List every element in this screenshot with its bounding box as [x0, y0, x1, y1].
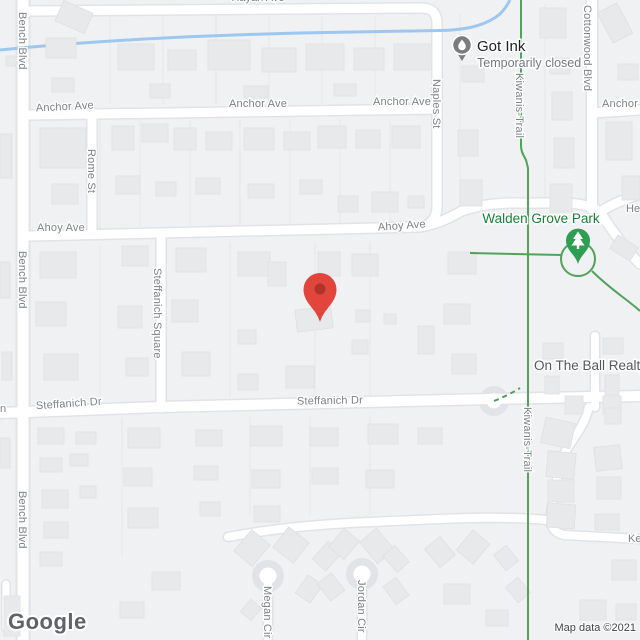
- building-footprint: [238, 252, 270, 276]
- building-footprint: [40, 458, 62, 472]
- building-footprint: [548, 480, 574, 502]
- building-footprint: [172, 300, 198, 322]
- street-label-anchor-ave-right-clipped: Anchor Ave: [602, 98, 640, 110]
- building-footprint: [603, 338, 623, 354]
- street-label-kiwanis-trail-2: Kiwanis-Trail: [521, 407, 533, 472]
- building-footprint: [594, 445, 622, 472]
- poi-on-the-ball-realty-name[interactable]: On The Ball Realty: [534, 358, 640, 373]
- street-label-steffanich-square: Steffanich Square: [151, 268, 163, 359]
- building-footprint: [42, 490, 68, 508]
- building-footprint: [605, 375, 619, 395]
- street-label-anchor-ave-3: Anchor Ave: [373, 96, 431, 108]
- building-footprint: [408, 196, 424, 208]
- building-footprint: [116, 176, 140, 194]
- building-footprint: [44, 354, 78, 380]
- building-footprint: [128, 508, 158, 528]
- building-footprint: [174, 128, 196, 150]
- building-footprint: [366, 470, 394, 488]
- building-footprint: [262, 48, 296, 72]
- street-label-megan-cir: Megan Cir: [261, 586, 273, 639]
- building-footprint: [70, 454, 88, 466]
- map-viewport: Bench Blvd Bench Blvd Bench Blvd Rome St…: [0, 0, 640, 640]
- building-footprint: [606, 122, 632, 160]
- building-footprint: [318, 126, 346, 148]
- street-label-jordan-cir: Jordan Cir: [355, 580, 367, 633]
- building-footprint: [286, 366, 314, 388]
- building-footprint: [196, 430, 222, 446]
- building-footprint: [597, 477, 621, 499]
- building-footprint: [486, 610, 508, 626]
- building-footprint: [0, 134, 12, 178]
- building-footprint: [334, 84, 356, 96]
- building-footprint: [238, 374, 258, 390]
- building-footprint: [284, 132, 310, 150]
- building-footprint: [0, 438, 10, 468]
- building-footprint: [254, 506, 280, 522]
- building-footprint: [248, 184, 274, 198]
- street-label-fragment-ke: Ke: [628, 533, 640, 545]
- street-label-fragment-top-clipped: Hayan Ave: [231, 0, 284, 4]
- building-footprint: [36, 302, 66, 326]
- building-footprint: [418, 326, 434, 354]
- building-footprint: [196, 178, 220, 194]
- building-footprint: [118, 44, 154, 70]
- building-footprint: [356, 130, 380, 148]
- street-label-cottonwood-blvd: Cottonwood Blvd: [581, 5, 593, 91]
- building-footprint: [200, 502, 220, 516]
- building-footprint: [546, 503, 576, 529]
- poi-got-ink-status: Temporarily closed: [477, 56, 581, 70]
- building-footprint: [605, 408, 621, 424]
- building-footprint: [152, 572, 180, 590]
- building-footprint: [448, 252, 476, 274]
- building-footprint: [46, 38, 76, 58]
- building-footprint: [44, 522, 68, 538]
- building-footprint: [244, 128, 274, 150]
- building-footprint: [546, 451, 577, 480]
- building-footprint: [250, 426, 282, 446]
- map-data-attribution: Map data ©2021: [555, 622, 637, 634]
- building-footprint: [52, 184, 78, 204]
- street-label-bench-blvd-2: Bench Blvd: [16, 251, 28, 309]
- building-footprint: [208, 40, 250, 70]
- building-footprint: [150, 84, 170, 98]
- street-label-ahoy-ave-1: Ahoy Ave: [37, 222, 85, 234]
- building-footprint: [6, 56, 16, 66]
- building-footprint: [356, 310, 370, 322]
- building-footprint: [552, 92, 572, 120]
- building-footprint: [40, 252, 76, 278]
- building-footprint: [168, 50, 196, 70]
- building-footprint: [384, 314, 396, 324]
- building-footprint: [126, 358, 148, 376]
- building-footprint: [244, 86, 268, 98]
- building-footprint: [392, 126, 420, 148]
- building-footprint: [142, 124, 168, 142]
- building-footprint: [352, 254, 378, 276]
- building-footprint: [206, 132, 232, 150]
- building-footprint: [394, 44, 430, 70]
- building-footprint: [444, 584, 470, 604]
- building-footprint: [182, 352, 210, 376]
- building-footprint: [252, 470, 280, 488]
- building-footprint: [458, 130, 478, 156]
- building-footprint: [124, 468, 152, 486]
- building-footprint: [372, 192, 398, 212]
- building-footprint: [368, 424, 398, 444]
- building-footprint: [352, 340, 368, 354]
- building-footprint: [541, 417, 576, 449]
- building-footprint: [38, 428, 64, 444]
- building-footprint: [176, 248, 206, 272]
- building-footprint: [622, 176, 640, 200]
- street-label-steffanich-dr-2: Steffanich Dr: [297, 394, 363, 407]
- building-footprint: [238, 330, 256, 344]
- building-footprint: [122, 246, 148, 266]
- building-footprint: [0, 262, 10, 298]
- building-footprint: [595, 514, 619, 530]
- building-footprint: [120, 602, 144, 618]
- street-label-bench-blvd-3: Bench Blvd: [16, 491, 28, 549]
- poi-walden-grove-park-name[interactable]: Walden Grove Park: [482, 211, 600, 226]
- building-footprint: [80, 486, 96, 498]
- map-canvas[interactable]: Bench Blvd Bench Blvd Bench Blvd Rome St…: [0, 0, 640, 640]
- building-footprint: [118, 306, 142, 328]
- building-footprint: [565, 396, 583, 414]
- building-footprint: [616, 604, 636, 620]
- building-footprint: [543, 343, 563, 359]
- building-footprint: [554, 138, 574, 168]
- street-label-fragment-n: n: [0, 403, 6, 415]
- building-footprint: [2, 352, 12, 380]
- building-footprint: [545, 376, 559, 394]
- street-label-kiwanis-trail-1: Kiwanis-Trail: [513, 73, 525, 138]
- building-footprint: [612, 560, 636, 580]
- building-footprint: [268, 262, 286, 286]
- building-footprint: [156, 182, 176, 196]
- poi-got-ink-name[interactable]: Got Ink: [477, 38, 526, 55]
- street-label-naples-st: Naples St: [430, 79, 442, 129]
- building-footprint: [338, 196, 358, 212]
- building-footprint: [300, 180, 322, 194]
- building-footprint: [312, 468, 338, 484]
- building-footprint: [580, 600, 606, 620]
- building-footprint: [452, 354, 476, 374]
- building-footprint: [128, 428, 160, 448]
- street-label-bench-blvd-1: Bench Blvd: [16, 12, 28, 70]
- building-footprint: [306, 44, 344, 70]
- street-label-anchor-ave-2: Anchor Ave: [229, 98, 287, 110]
- building-footprint: [76, 432, 96, 444]
- building-footprint: [418, 428, 442, 444]
- building-footprint: [40, 128, 86, 168]
- building-footprint: [40, 552, 62, 566]
- building-footprint: [550, 184, 572, 212]
- building-footprint: [318, 252, 340, 276]
- building-footprint: [618, 64, 638, 80]
- building-footprint: [310, 428, 338, 446]
- street-label-fragment-he: He: [626, 203, 640, 215]
- google-logo[interactable]: Google: [8, 609, 87, 634]
- building-footprint: [460, 180, 482, 206]
- building-footprint: [444, 304, 470, 324]
- building-footprint: [540, 8, 566, 38]
- building-footprint: [194, 466, 218, 480]
- street-label-rome-st: Rome St: [85, 149, 97, 193]
- building-footprint: [112, 126, 134, 150]
- building-footprint: [52, 78, 74, 92]
- building-footprint: [354, 48, 384, 70]
